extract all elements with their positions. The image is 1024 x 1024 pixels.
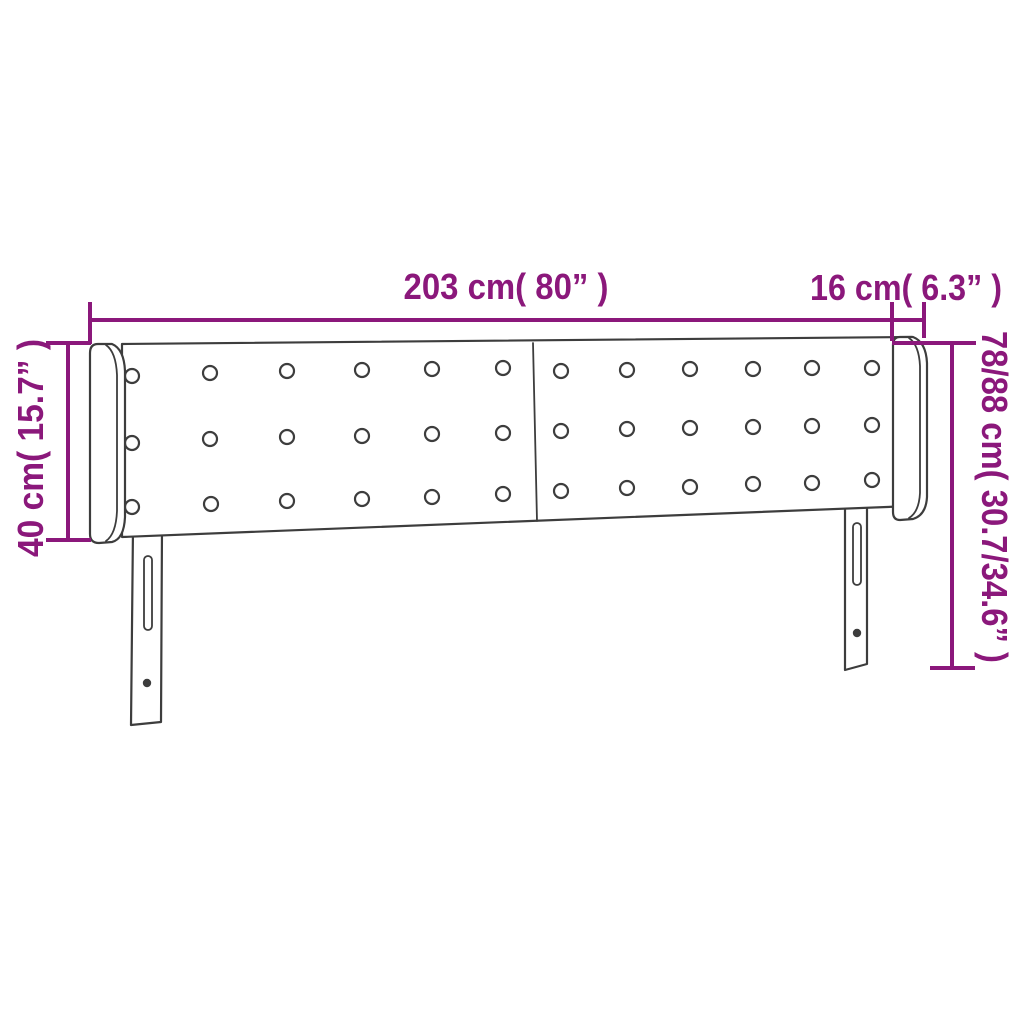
left-leg (131, 527, 162, 725)
tufting-button (280, 494, 294, 508)
tufting-button (746, 477, 760, 491)
right-wing (893, 337, 927, 520)
tufting-button (125, 500, 139, 514)
dimension-label-total-width: 203 cm( 80” ) (404, 266, 609, 307)
dimension-label-total-height: 78/88 cm( 30.7/34.6” ) (974, 331, 1015, 663)
product-dimension-diagram: 203 cm( 80” ) 16 cm( 6.3” ) 40 cm( 15.7”… (0, 0, 1024, 1024)
tufting-button (620, 481, 634, 495)
tufting-button (865, 361, 879, 375)
tufting-button (355, 429, 369, 443)
tufting-button (280, 364, 294, 378)
tufting-button (805, 361, 819, 375)
diagram-canvas: 203 cm( 80” ) 16 cm( 6.3” ) 40 cm( 15.7”… (0, 0, 1024, 1024)
tufting-button (425, 427, 439, 441)
tufting-button (280, 430, 294, 444)
left-wing (90, 344, 125, 543)
width-dimension: 203 cm( 80” ) 16 cm( 6.3” ) (90, 266, 1002, 344)
tufting-button (620, 363, 634, 377)
left-leg-screw-hole (143, 679, 151, 687)
headboard-panel (122, 337, 912, 537)
tufting-button (425, 362, 439, 376)
tufting-button (125, 436, 139, 450)
tufting-button (805, 476, 819, 490)
left-wing-outline (90, 344, 125, 543)
tufting-button (204, 497, 218, 511)
tufting-button (683, 362, 697, 376)
upholstery-height-dimension: 40 cm( 15.7” ) (10, 339, 91, 557)
tufting-button (746, 420, 760, 434)
tufting-button (355, 363, 369, 377)
tufting-button (865, 473, 879, 487)
tufting-button (425, 490, 439, 504)
tufting-button (805, 419, 819, 433)
headboard (90, 337, 927, 725)
tufting-button (496, 426, 510, 440)
tufting-button (554, 424, 568, 438)
dimension-label-wing-width: 16 cm( 6.3” ) (810, 267, 1002, 308)
tufting-button (203, 366, 217, 380)
tufting-button (683, 480, 697, 494)
right-wing-outline (893, 337, 927, 520)
tufting-button (746, 362, 760, 376)
tufting-button (865, 418, 879, 432)
tufting-button (683, 421, 697, 435)
tufting-button (554, 484, 568, 498)
tufting-button (125, 369, 139, 383)
tufting-button (496, 487, 510, 501)
tufting-button (554, 364, 568, 378)
tufting-button (203, 432, 217, 446)
right-leg-screw-hole (853, 629, 861, 637)
right-leg (845, 497, 867, 670)
tufting-button (355, 492, 369, 506)
tufting-button (496, 361, 510, 375)
dimension-label-upholstery-height: 40 cm( 15.7” ) (10, 339, 51, 557)
tufting-button (620, 422, 634, 436)
